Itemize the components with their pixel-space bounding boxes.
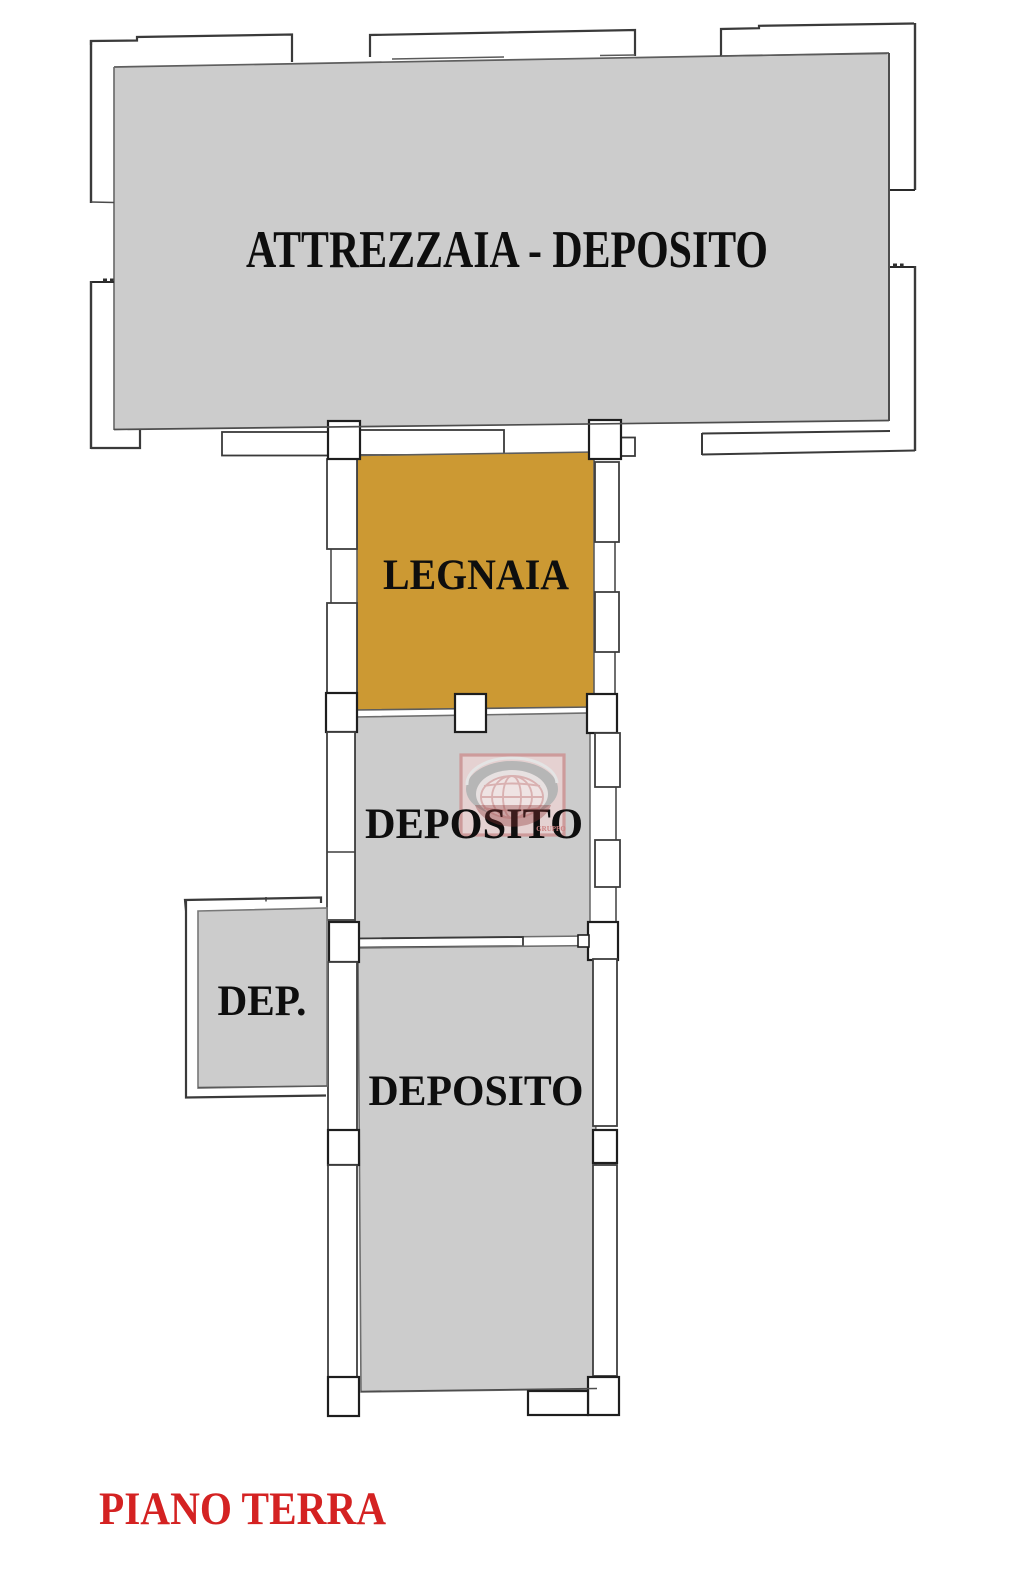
svg-text:LEGNAIA: LEGNAIA xyxy=(383,552,569,599)
svg-text:DEP.: DEP. xyxy=(218,978,307,1025)
svg-text:GRUPPO: GRUPPO xyxy=(536,825,566,833)
svg-text:DEPOSITO: DEPOSITO xyxy=(369,1068,584,1115)
svg-text:ATTREZZAIA - DEPOSITO: ATTREZZAIA - DEPOSITO xyxy=(246,221,768,279)
svg-text:PIANO TERRA: PIANO TERRA xyxy=(99,1483,386,1535)
